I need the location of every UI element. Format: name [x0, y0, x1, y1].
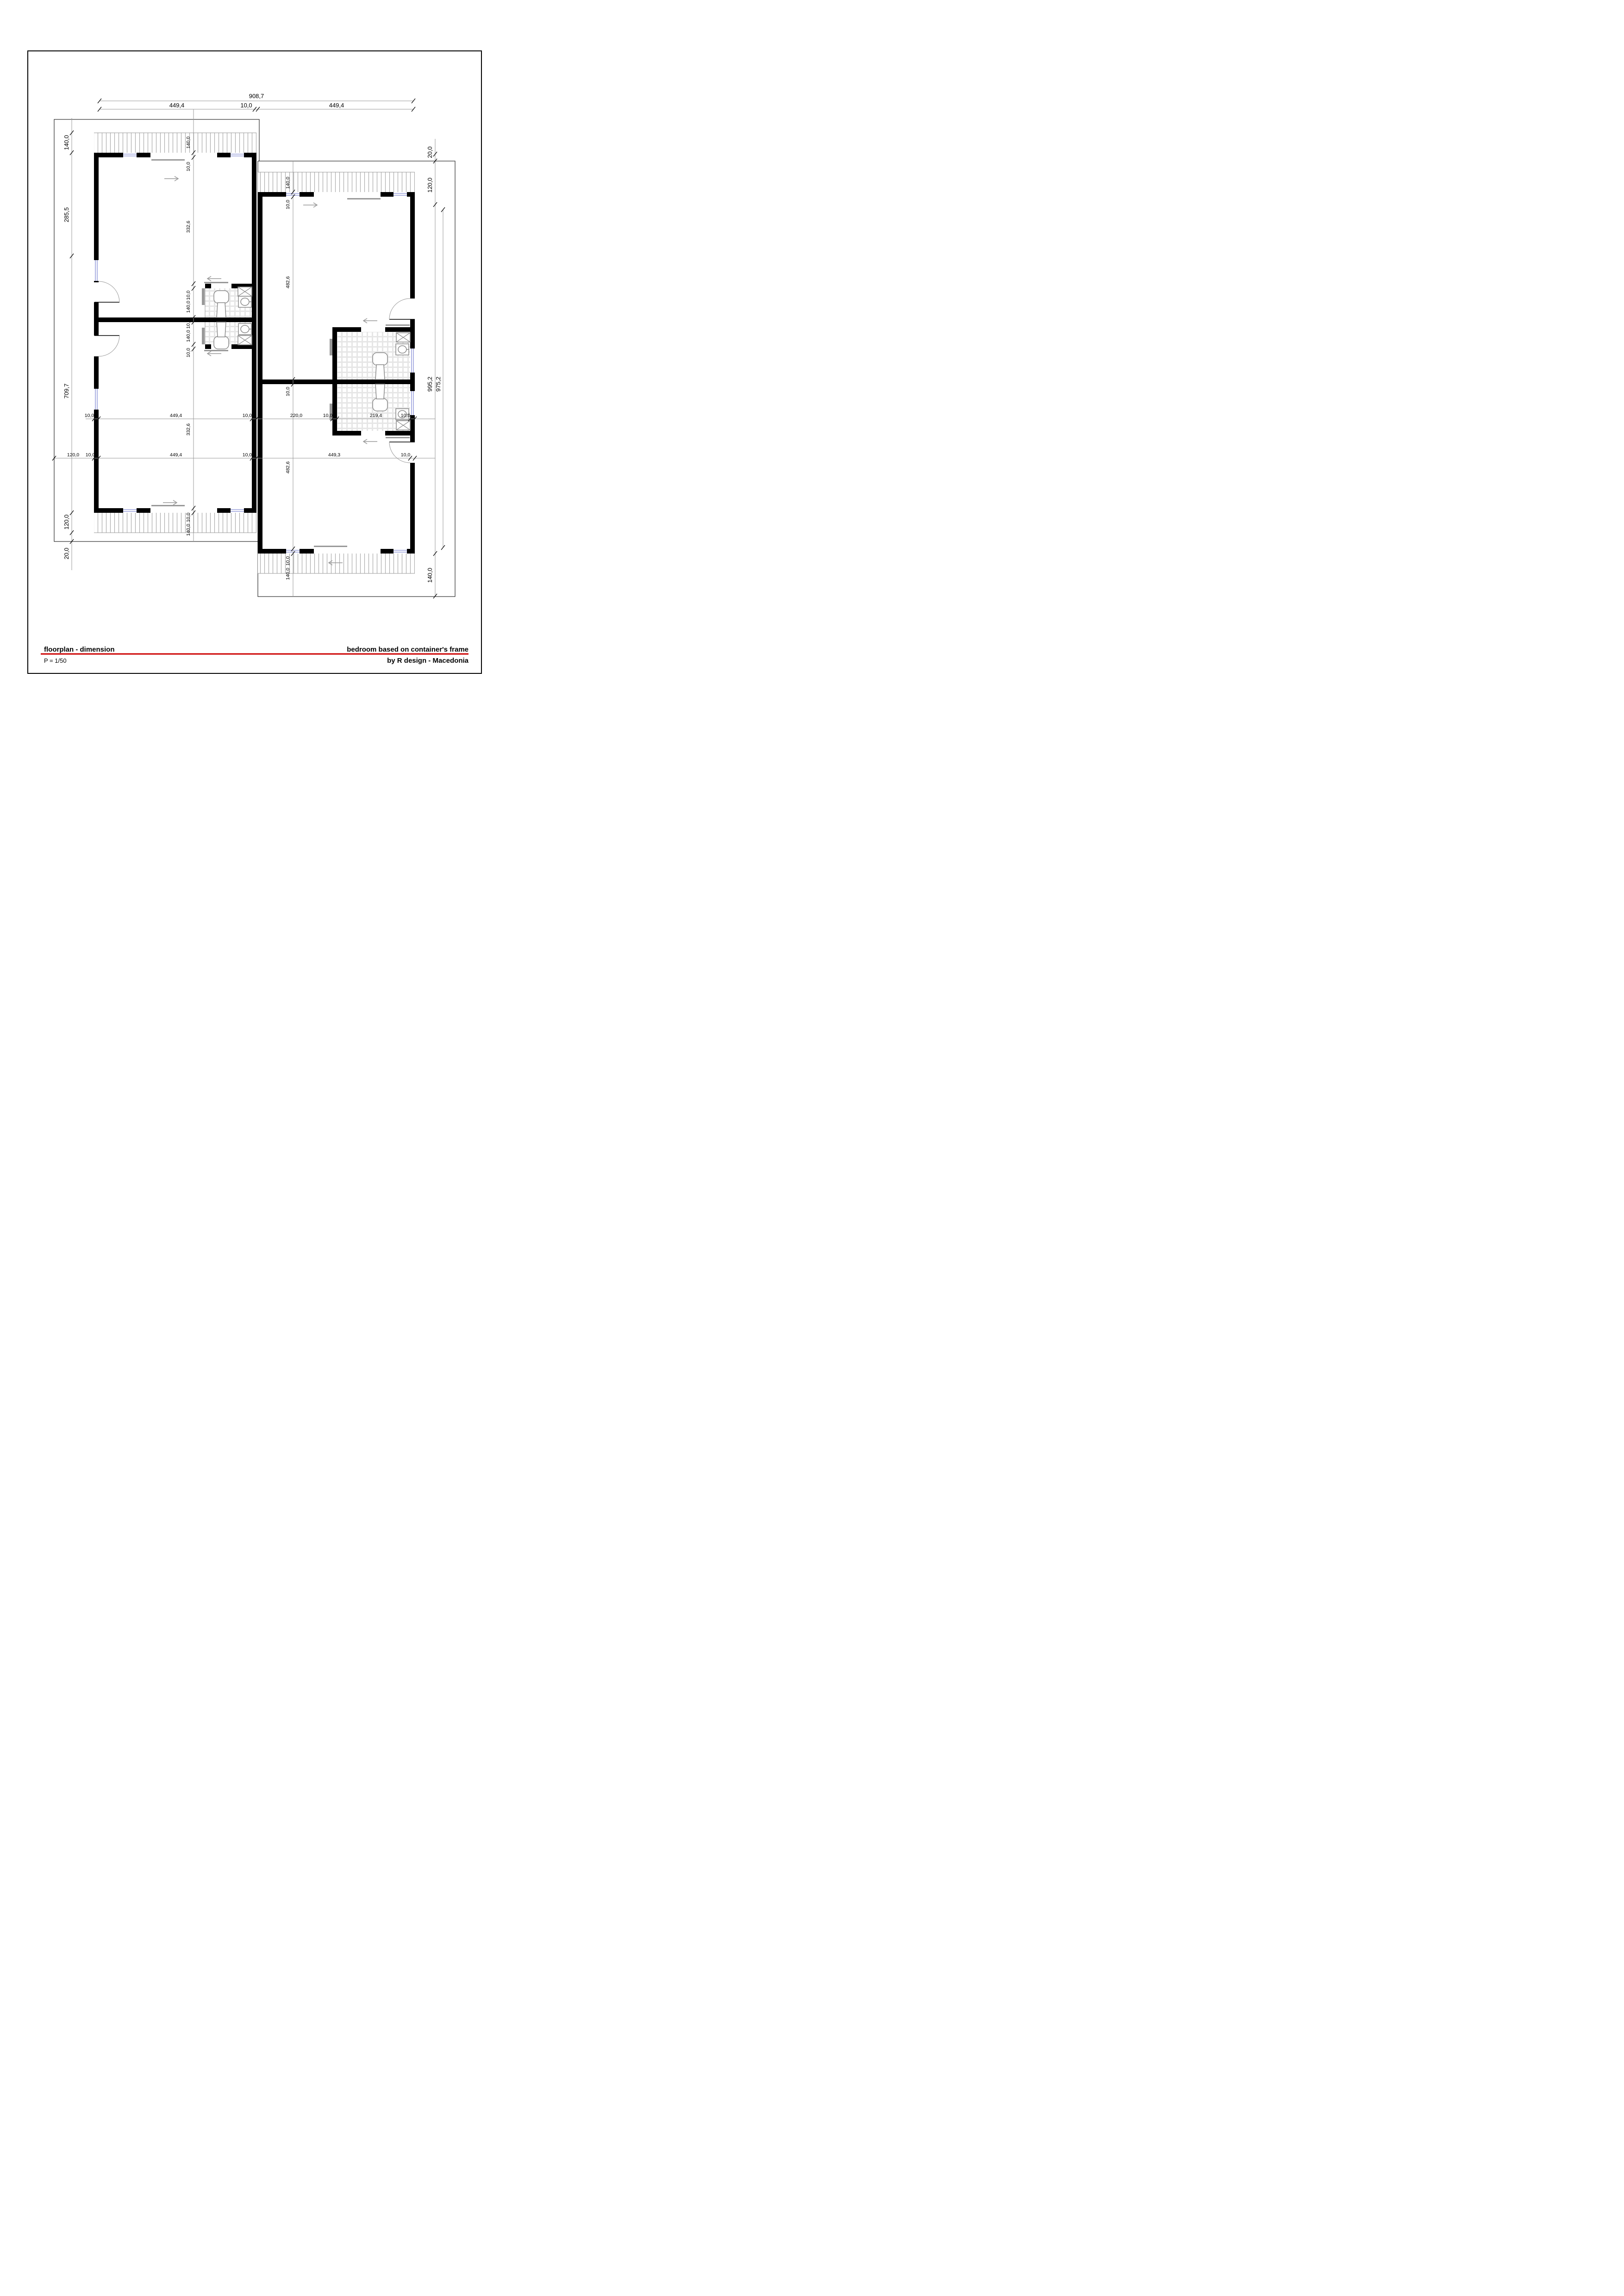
- unit-a-left-wall: [94, 153, 119, 508]
- title-block: floorplan - dimension P = 1/50 bedroom b…: [41, 646, 469, 665]
- dim-label: 332,6: [186, 221, 191, 233]
- sliding-door-panel: [330, 339, 332, 355]
- dim-label: 140,0: [186, 301, 191, 313]
- dim-label: 10,0: [323, 413, 333, 418]
- dim-label: 10,0: [401, 413, 411, 418]
- dim-label: 285,5: [63, 207, 70, 223]
- dim-label: 140,0: [426, 568, 433, 583]
- unit-b-bottom-wall: [258, 546, 415, 554]
- sliding-door: [347, 198, 381, 199]
- dim-label: 10,0: [240, 102, 252, 109]
- dim-label: 908,7: [249, 93, 264, 100]
- dim-label: 332,6: [186, 423, 191, 436]
- dim-label: 120,0: [63, 515, 70, 530]
- dim-label: 449,4: [170, 413, 182, 418]
- dim-label: 482,6: [285, 461, 291, 473]
- window-icon: [392, 192, 408, 197]
- dim-label: 449,3: [328, 452, 340, 458]
- shower-icon: [396, 421, 410, 430]
- dim-label: 10,0: [186, 319, 191, 329]
- project-title: bedroom based on container's frame: [347, 646, 468, 653]
- dim-label: 10,0: [285, 556, 291, 566]
- unit-a: [94, 153, 256, 513]
- entry-arrow-icon: [207, 276, 221, 281]
- dim-label: 140,0: [186, 524, 191, 536]
- dim-label: 449,4: [169, 102, 185, 109]
- dim-label: 120,0: [426, 178, 433, 193]
- dim-label: 140,0: [285, 568, 291, 580]
- shower-icon: [396, 333, 410, 342]
- dim-label: 10,0: [186, 291, 191, 300]
- unit-b-top-wall: [258, 192, 415, 199]
- unit-a-top-wall: [94, 153, 256, 161]
- dim-label: 10,0: [243, 452, 252, 458]
- sliding-door: [204, 350, 228, 351]
- dim-label: 20,0: [426, 146, 433, 158]
- entry-arrow-icon: [363, 318, 377, 323]
- dim-label: 20,0: [63, 548, 70, 559]
- sink-icon: [396, 344, 409, 355]
- dim-label: 10,0: [186, 162, 191, 172]
- window-icon: [229, 508, 245, 513]
- dim-label: 10,0: [85, 413, 94, 418]
- sink-icon: [238, 324, 252, 335]
- deck-bottom-unit-a: [94, 513, 256, 533]
- unit-b-left-wall: [258, 192, 262, 549]
- dim-label: 10,0: [401, 452, 411, 458]
- window-icon: [410, 347, 415, 374]
- window-icon: [94, 259, 99, 282]
- entry-arrow-icon: [303, 203, 317, 207]
- floorplan-page: { "title_block": { "left_title": "floorp…: [0, 0, 509, 720]
- window-icon: [94, 387, 99, 411]
- sink-icon: [238, 296, 252, 307]
- dim-label: 709,7: [63, 384, 70, 399]
- dim-label: 120,0: [67, 452, 79, 458]
- shower-icon: [238, 287, 252, 296]
- dim-label: 449,4: [170, 452, 182, 458]
- sliding-door: [386, 437, 410, 438]
- dim-label: 449,4: [329, 102, 344, 109]
- deck-top-unit-a: [94, 133, 256, 153]
- deck-bottom-unit-b: [258, 554, 415, 573]
- dim-label: 140,0: [186, 330, 191, 342]
- dim-label: 10,0: [86, 452, 95, 458]
- door-swing-arc: [389, 299, 410, 319]
- floorplan-drawing: 908,7 449,4 10,0 449,4 140,0 285,5 709,7…: [0, 0, 509, 720]
- dim-label: 10,0: [285, 200, 291, 210]
- sliding-door: [151, 159, 185, 161]
- sliding-door-panel: [202, 288, 205, 305]
- unit-b: [258, 192, 415, 565]
- dim-label: 10,0: [186, 513, 191, 523]
- dim-label: 10,0: [243, 413, 252, 418]
- dim-label: 219,4: [370, 413, 382, 418]
- dim-label: 995,2: [426, 377, 433, 392]
- dim-label: 975,2: [435, 377, 442, 392]
- door-swing-arc: [99, 336, 119, 356]
- door-swing-arc: [99, 281, 119, 302]
- sliding-door-panel: [202, 328, 205, 344]
- entry-arrow-icon: [363, 439, 377, 444]
- sliding-door: [204, 282, 228, 283]
- drawing-scale: P = 1/50: [44, 657, 67, 664]
- shower-icon: [238, 336, 252, 345]
- unit-a-bottom-wall: [94, 505, 256, 513]
- deck-top-unit-b: [258, 172, 415, 192]
- drawing-title: floorplan - dimension: [44, 646, 115, 653]
- dim-label: 140,0: [285, 177, 291, 189]
- window-icon: [392, 549, 408, 554]
- dim-label: 10,0: [186, 348, 191, 358]
- entry-arrow-icon: [207, 351, 221, 356]
- sliding-door: [151, 505, 185, 506]
- window-icon: [410, 390, 415, 417]
- window-icon: [122, 508, 138, 513]
- sliding-door: [386, 324, 410, 326]
- author-credit: by R design - Macedonia: [387, 657, 469, 665]
- dim-label: 10,0: [285, 387, 291, 397]
- window-icon: [229, 153, 245, 157]
- sliding-door: [314, 546, 347, 547]
- unit-a-interior-wall: [99, 317, 252, 322]
- dim-label: 482,6: [285, 276, 291, 288]
- dim-label: 140,0: [63, 135, 70, 150]
- entry-arrow-icon: [164, 176, 178, 181]
- dim-label: 220,0: [290, 413, 302, 418]
- entry-arrow-icon: [163, 500, 177, 505]
- dim-label: 140,0: [186, 137, 191, 149]
- window-icon: [122, 153, 138, 157]
